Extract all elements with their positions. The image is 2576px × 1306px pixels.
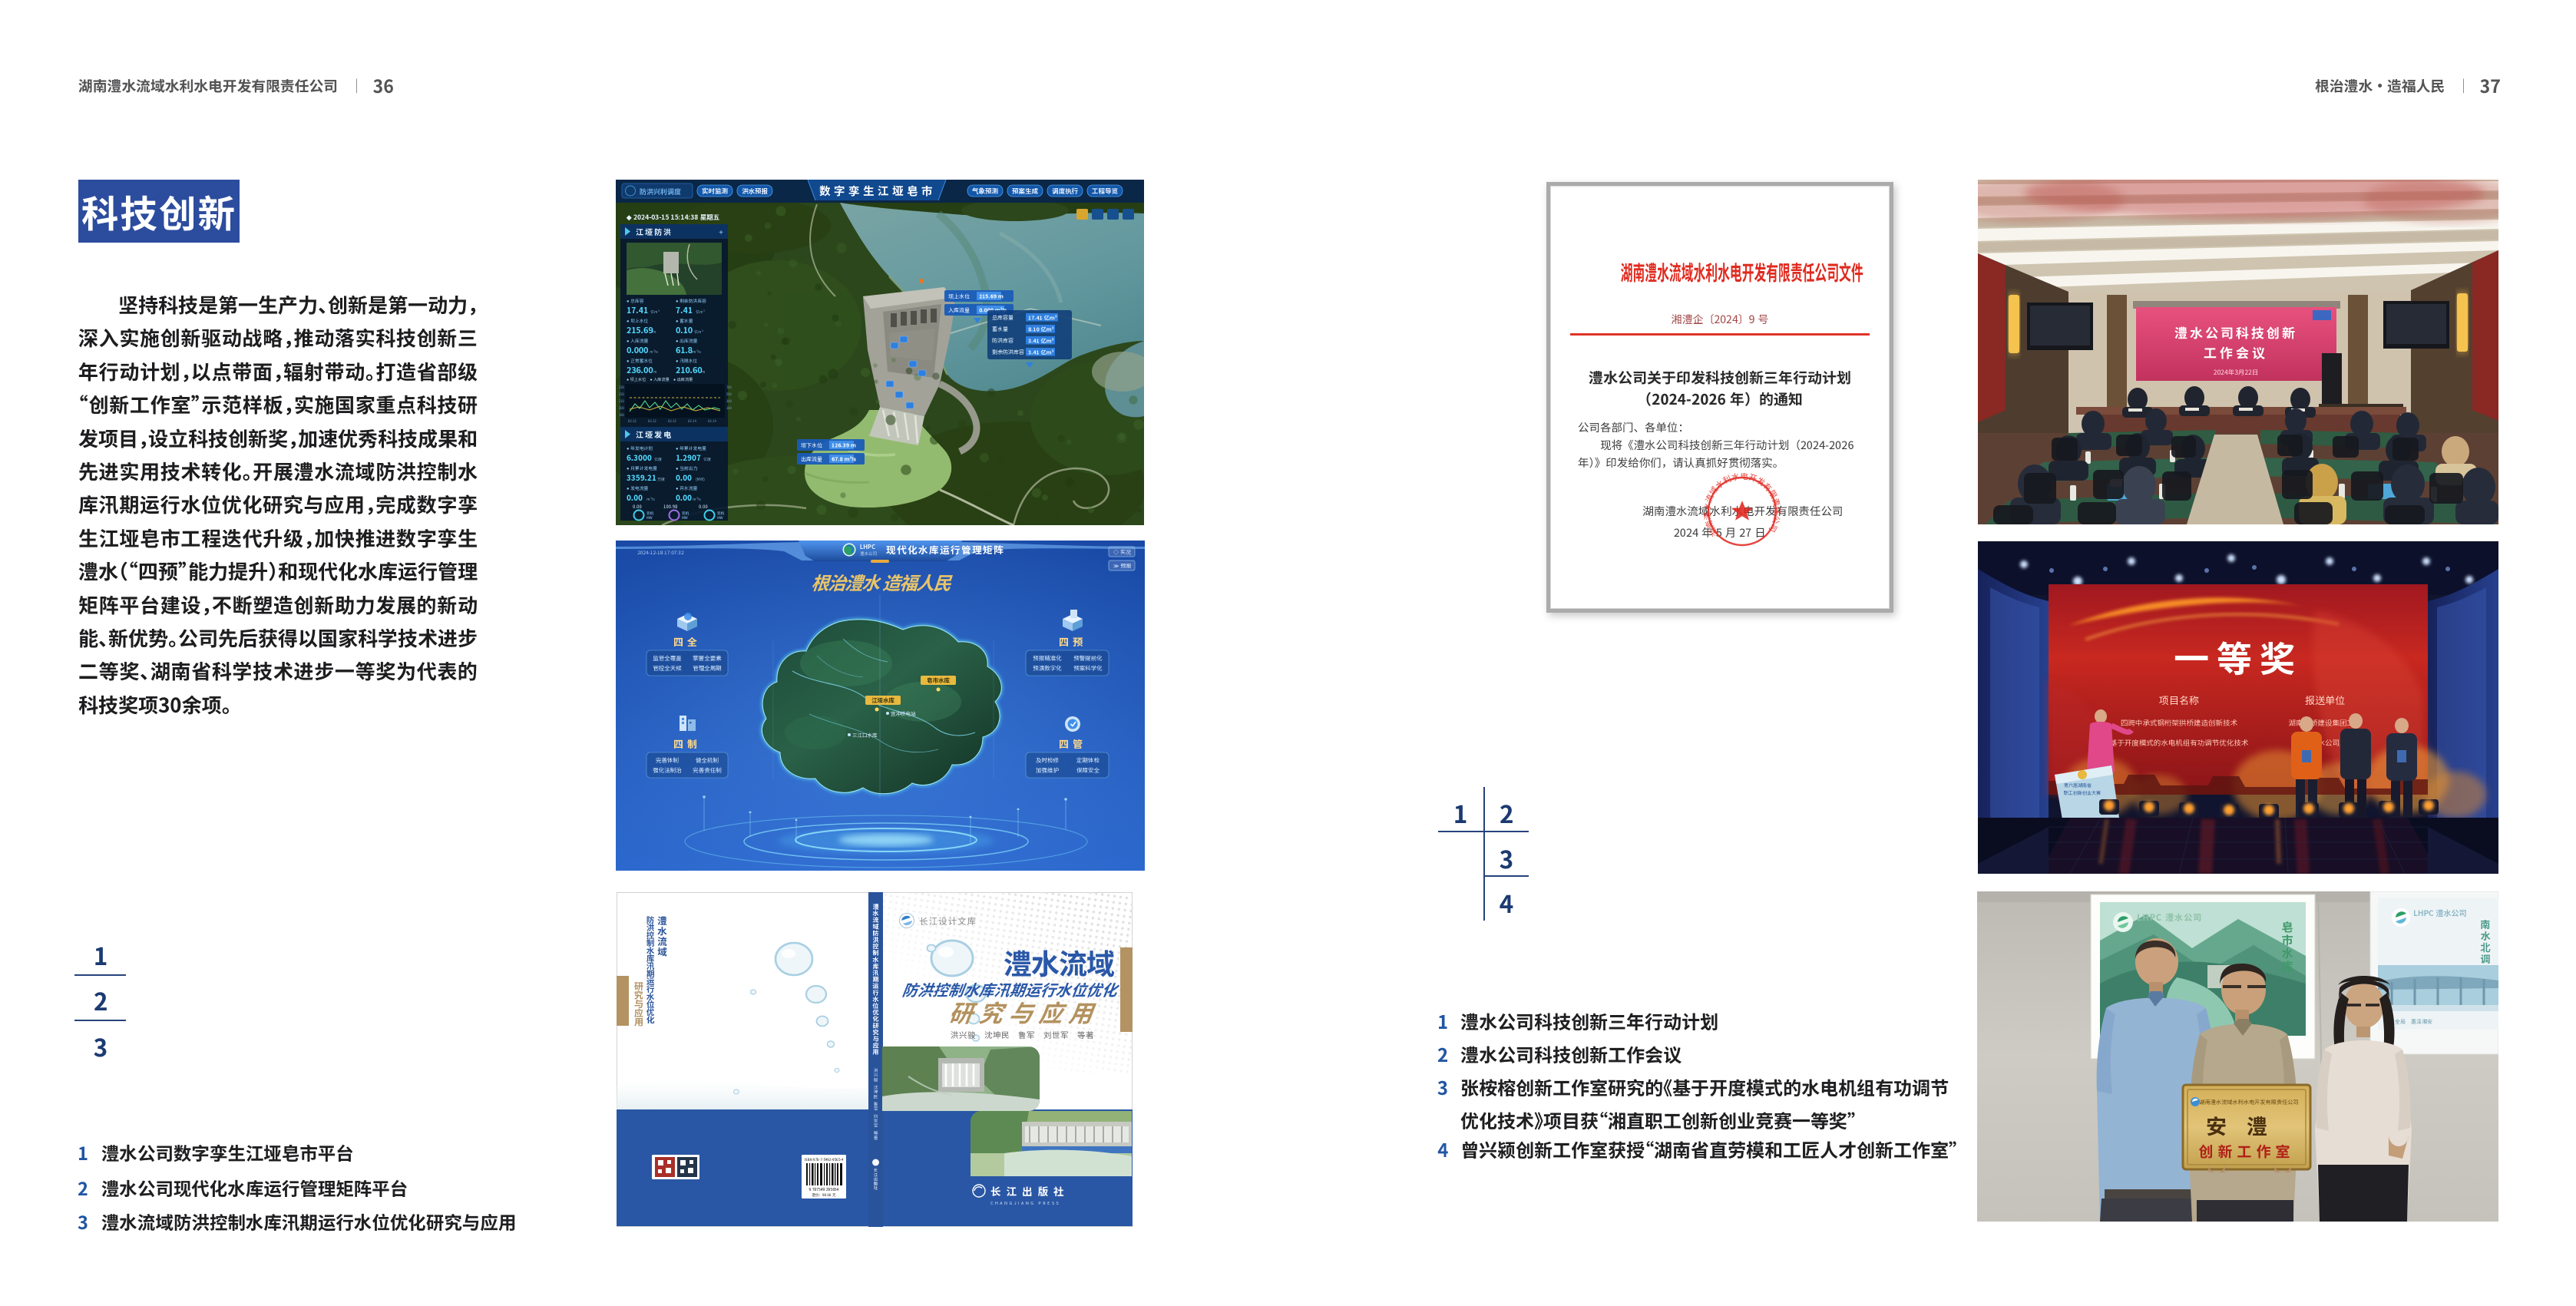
svg-text:亿m³: 亿m³ bbox=[650, 309, 660, 315]
svg-text:预案科学化: 预案科学化 bbox=[1073, 664, 1103, 673]
svg-text:MW: MW bbox=[646, 516, 653, 521]
svg-text:17.41 亿m³: 17.41 亿m³ bbox=[1028, 315, 1057, 322]
svg-text:0.000: 0.000 bbox=[627, 345, 649, 356]
svg-text:研究与应用: 研究与应用 bbox=[634, 980, 643, 1028]
svg-text:江垭发电: 江垭发电 bbox=[636, 428, 673, 440]
svg-text:坝上水位: 坝上水位 bbox=[948, 293, 970, 301]
svg-text:安澧: 安澧 bbox=[2206, 1110, 2287, 1140]
svg-text:2024年3月22日: 2024年3月22日 bbox=[2214, 368, 2259, 377]
svg-text:0.00: 0.00 bbox=[627, 491, 643, 503]
svg-text:m: m bbox=[653, 369, 657, 375]
svg-text:洪水预报: 洪水预报 bbox=[742, 187, 769, 196]
svg-text:研究与应用: 研究与应用 bbox=[947, 994, 1102, 1029]
svg-text:CHANGJIANG PRESS: CHANGJIANG PRESS bbox=[990, 1201, 1060, 1206]
svg-text:四全: 四全 bbox=[673, 634, 701, 649]
svg-text:三江口水库: 三江口水库 bbox=[852, 731, 878, 739]
svg-text:四预: 四预 bbox=[1059, 634, 1086, 649]
svg-text:◆ 2024-03-15 15:14:38 星期五: ◆ 2024-03-15 15:14:38 星期五 bbox=[626, 213, 719, 222]
svg-text:防洪控制水库汛期运行水位优化: 防洪控制水库汛期运行水位优化 bbox=[646, 914, 655, 1026]
svg-text:67.8 m³/s: 67.8 m³/s bbox=[832, 456, 856, 464]
svg-text:防洪库容: 防洪库容 bbox=[992, 337, 1014, 345]
svg-text:17.41: 17.41 bbox=[627, 305, 648, 316]
svg-text:0.10: 0.10 bbox=[676, 325, 693, 336]
svg-text:61.8: 61.8 bbox=[676, 345, 693, 356]
svg-text:● 年发电计划: ● 年发电计划 bbox=[627, 445, 653, 451]
svg-text:m: m bbox=[653, 329, 656, 335]
svg-text:四管: 四管 bbox=[1059, 736, 1086, 751]
svg-text:● 月累计发电量: ● 月累计发电量 bbox=[627, 465, 657, 471]
svg-text:210: 210 bbox=[619, 399, 625, 404]
svg-text:剩余防洪库容: 剩余防洪库容 bbox=[992, 349, 1024, 356]
svg-text:预警提前化: 预警提前化 bbox=[1073, 654, 1103, 663]
svg-text:7.41: 7.41 bbox=[676, 305, 693, 316]
svg-text:一等奖: 一等奖 bbox=[2174, 632, 2303, 683]
svg-text:● 出库流量: ● 出库流量 bbox=[676, 337, 698, 344]
svg-text:总库容量: 总库容量 bbox=[992, 314, 1014, 322]
svg-text:亿m³: 亿m³ bbox=[694, 329, 703, 335]
svg-text:230: 230 bbox=[619, 385, 625, 390]
svg-text:● 发电流量: ● 发电流量 bbox=[627, 484, 649, 491]
svg-text:亿m³: 亿m³ bbox=[696, 309, 705, 315]
svg-text:200: 200 bbox=[619, 406, 625, 411]
svg-text:1.2907: 1.2907 bbox=[676, 451, 701, 463]
svg-text:215.69: 215.69 bbox=[627, 325, 653, 336]
svg-text:四制: 四制 bbox=[673, 736, 701, 751]
svg-text:长江出版社: 长江出版社 bbox=[990, 1183, 1070, 1199]
svg-text:0.00: 0.00 bbox=[676, 491, 692, 503]
svg-text:根治澧水 造福人民: 根治澧水 造福人民 bbox=[810, 569, 954, 595]
svg-text:215.69 m: 215.69 m bbox=[979, 293, 1004, 301]
svg-text:m³/s: m³/s bbox=[693, 349, 701, 355]
svg-text:实时监测: 实时监测 bbox=[702, 187, 728, 196]
svg-text:● 正常蓄水位: ● 正常蓄水位 bbox=[627, 357, 653, 364]
svg-text:项目名称: 项目名称 bbox=[2159, 693, 2199, 707]
svg-text:LHPC 澧水公司: LHPC 澧水公司 bbox=[2413, 907, 2466, 918]
svg-text:03-12: 03-12 bbox=[628, 419, 637, 424]
svg-text:9 787549 295654: 9 787549 295654 bbox=[809, 1187, 840, 1192]
svg-text:亿度: 亿度 bbox=[703, 457, 711, 462]
svg-text:03-14: 03-14 bbox=[708, 419, 716, 424]
svg-text:● 总库容: ● 总库容 bbox=[627, 297, 644, 304]
svg-text:定价：98.00 元: 定价：98.00 元 bbox=[812, 1192, 836, 1198]
svg-text:强化法制治: 强化法制治 bbox=[653, 766, 682, 775]
svg-text:澧水流域: 澧水流域 bbox=[1004, 941, 1115, 983]
svg-text:装机: 装机 bbox=[717, 511, 724, 516]
svg-text:现代化水库运行管理矩阵: 现代化水库运行管理矩阵 bbox=[886, 542, 1004, 557]
svg-text:装机: 装机 bbox=[682, 511, 689, 516]
svg-text:210.60: 210.60 bbox=[676, 365, 703, 376]
svg-text:皂市水库: 皂市水库 bbox=[2280, 919, 2293, 974]
svg-text:江垭防洪: 江垭防洪 bbox=[636, 226, 673, 237]
svg-text:300: 300 bbox=[726, 399, 732, 404]
svg-text:2024-12-18 17:07:32: 2024-12-18 17:07:32 bbox=[637, 548, 684, 556]
svg-text:数字孪生江垭皂市: 数字孪生江垭皂市 bbox=[819, 183, 936, 199]
svg-text:● 剩余防洪库容: ● 剩余防洪库容 bbox=[676, 297, 706, 304]
svg-text:管控全天候: 管控全天候 bbox=[653, 664, 682, 673]
svg-text:出库流量: 出库流量 bbox=[801, 456, 822, 464]
svg-text:四跨中承式钢桁架拱桥建造创新技术: 四跨中承式钢桁架拱桥建造创新技术 bbox=[2121, 717, 2237, 728]
svg-text:监管全覆盖: 监管全覆盖 bbox=[653, 654, 682, 663]
svg-text:澧水流域: 澧水流域 bbox=[657, 913, 667, 959]
svg-text:调度执行: 调度执行 bbox=[1052, 187, 1079, 196]
svg-text:宜冲桥电站: 宜冲桥电站 bbox=[891, 709, 916, 717]
svg-text:3.41 亿m³: 3.41 亿m³ bbox=[1028, 349, 1053, 357]
svg-text:LHPC 澧水公司: LHPC 澧水公司 bbox=[2137, 911, 2202, 924]
svg-text:m: m bbox=[702, 369, 706, 375]
svg-text:0.00: 0.00 bbox=[633, 503, 642, 510]
svg-text:装机: 装机 bbox=[646, 511, 653, 516]
svg-text:定期体检: 定期体检 bbox=[1076, 756, 1100, 765]
svg-text:掌握全要素: 掌握全要素 bbox=[693, 654, 722, 663]
svg-text:气象预测: 气象预测 bbox=[971, 187, 998, 196]
svg-text:m³/s: m³/s bbox=[693, 497, 701, 502]
svg-text:长江设计文库: 长江设计文库 bbox=[919, 915, 977, 927]
svg-text:及时检修: 及时检修 bbox=[1036, 756, 1059, 765]
svg-text:● 坝上水位: ● 坝上水位 bbox=[627, 317, 649, 324]
svg-text:100.98: 100.98 bbox=[663, 503, 678, 510]
svg-text:126.39 m: 126.39 m bbox=[832, 442, 856, 450]
svg-text:03-13: 03-13 bbox=[668, 419, 676, 424]
svg-text:管理全周期: 管理全周期 bbox=[693, 664, 722, 673]
svg-text:● 弃水流量: ● 弃水流量 bbox=[676, 484, 698, 491]
svg-text:长江出版社: 长江出版社 bbox=[873, 1168, 878, 1191]
svg-text:+: + bbox=[719, 226, 723, 237]
svg-text:工程导览: 工程导览 bbox=[1092, 187, 1119, 196]
svg-text:澧水流域防洪控制水库汛期运行水位优化研究与应用: 澧水流域防洪控制水库汛期运行水位优化研究与应用 bbox=[872, 903, 880, 1056]
svg-text:220: 220 bbox=[619, 392, 625, 397]
svg-text:洪兴骏沈坤民鲁军刘世军等著: 洪兴骏沈坤民鲁军刘世军等著 bbox=[873, 1067, 878, 1141]
svg-text:完善体制: 完善体制 bbox=[656, 756, 679, 765]
svg-text:m³/s: m³/s bbox=[646, 497, 655, 502]
svg-text:第六届湖南省: 第六届湖南省 bbox=[2064, 782, 2092, 789]
svg-text:3359.21: 3359.21 bbox=[627, 471, 656, 483]
svg-text:6.3000: 6.3000 bbox=[627, 451, 652, 463]
svg-text:03-14: 03-14 bbox=[688, 419, 696, 424]
svg-text:澧水公司科技创新: 澧水公司科技创新 bbox=[2174, 322, 2297, 342]
svg-text:职工创新创业大赛: 职工创新创业大赛 bbox=[2063, 789, 2101, 796]
svg-text:3.41 亿m³: 3.41 亿m³ bbox=[1028, 338, 1053, 346]
svg-text:● 蓄水量: ● 蓄水量 bbox=[676, 317, 693, 324]
svg-text:0.00: 0.00 bbox=[676, 471, 692, 483]
svg-text:100: 100 bbox=[726, 406, 732, 411]
svg-text:预报精准化: 预报精准化 bbox=[1033, 654, 1062, 663]
svg-text:创新工作室: 创新工作室 bbox=[2198, 1141, 2294, 1162]
svg-text:● 入库流量: ● 入库流量 bbox=[627, 337, 649, 344]
svg-text:0.00: 0.00 bbox=[699, 503, 708, 510]
svg-text:蓄水量: 蓄水量 bbox=[992, 326, 1008, 333]
svg-text:保障安全: 保障安全 bbox=[1076, 766, 1100, 775]
svg-text:8.10 亿m³: 8.10 亿m³ bbox=[1028, 326, 1053, 334]
svg-text:03-13: 03-13 bbox=[648, 419, 656, 424]
svg-text:健全机制: 健全机制 bbox=[696, 756, 719, 765]
svg-text:基于开度模式的水电机组有功调节优化技术: 基于开度模式的水电机组有功调节优化技术 bbox=[2110, 737, 2249, 748]
svg-text:● 汛限水位: ● 汛限水位 bbox=[676, 357, 698, 364]
svg-text:ISBN 978-7-5492-9565-4: ISBN 978-7-5492-9565-4 bbox=[804, 1158, 845, 1162]
svg-text:预演数字化: 预演数字化 bbox=[1033, 664, 1062, 673]
svg-text:亿度: 亿度 bbox=[654, 457, 662, 462]
svg-text:万度: 万度 bbox=[656, 477, 665, 482]
svg-text:190: 190 bbox=[619, 413, 625, 418]
svg-text:完善责任制: 完善责任制 bbox=[693, 766, 722, 775]
svg-text:● 坝上水位 ● 入库流量 ● 出库流量: ● 坝上水位 ● 入库流量 ● 出库流量 bbox=[627, 376, 693, 382]
svg-text:防洪兴利调度: 防洪兴利调度 bbox=[640, 187, 681, 197]
svg-text:洪兴骏 沈坤民 鲁军 刘世军 等著: 洪兴骏 沈坤民 鲁军 刘世军 等著 bbox=[951, 1030, 1094, 1041]
svg-text:m³/s: m³/s bbox=[650, 349, 658, 355]
svg-text:(MW): (MW) bbox=[696, 477, 705, 482]
svg-text:MW: MW bbox=[682, 516, 688, 521]
svg-text:皂市水库: 皂市水库 bbox=[927, 676, 950, 685]
svg-text:500: 500 bbox=[726, 392, 732, 397]
svg-text:报送单位: 报送单位 bbox=[2304, 693, 2345, 707]
svg-text:湖南澧水流域水利水电开发有限责任公司: 湖南澧水流域水利水电开发有限责任公司 bbox=[2199, 1099, 2298, 1106]
svg-text:坝下水位: 坝下水位 bbox=[801, 442, 822, 450]
svg-text:◇ 实况: ◇ 实况 bbox=[1113, 549, 1131, 557]
svg-text:700: 700 bbox=[726, 385, 732, 390]
svg-text:入库流量: 入库流量 bbox=[948, 307, 970, 315]
svg-text:南水北调: 南水北调 bbox=[2480, 917, 2491, 966]
svg-text:● 年累计发电量: ● 年累计发电量 bbox=[676, 445, 706, 451]
svg-text:江垭水库: 江垭水库 bbox=[871, 696, 894, 705]
svg-text:加强维护: 加强维护 bbox=[1036, 766, 1059, 775]
svg-text:澧水公司: 澧水公司 bbox=[859, 551, 877, 557]
svg-text:236.00: 236.00 bbox=[627, 365, 653, 376]
svg-text:MW: MW bbox=[717, 516, 723, 521]
svg-text:≫ 预报: ≫ 预报 bbox=[1113, 563, 1131, 570]
svg-text:预案生成: 预案生成 bbox=[1011, 187, 1039, 196]
svg-text:工作会议: 工作会议 bbox=[2204, 342, 2268, 362]
svg-text:● 当前出力: ● 当前出力 bbox=[676, 465, 698, 471]
